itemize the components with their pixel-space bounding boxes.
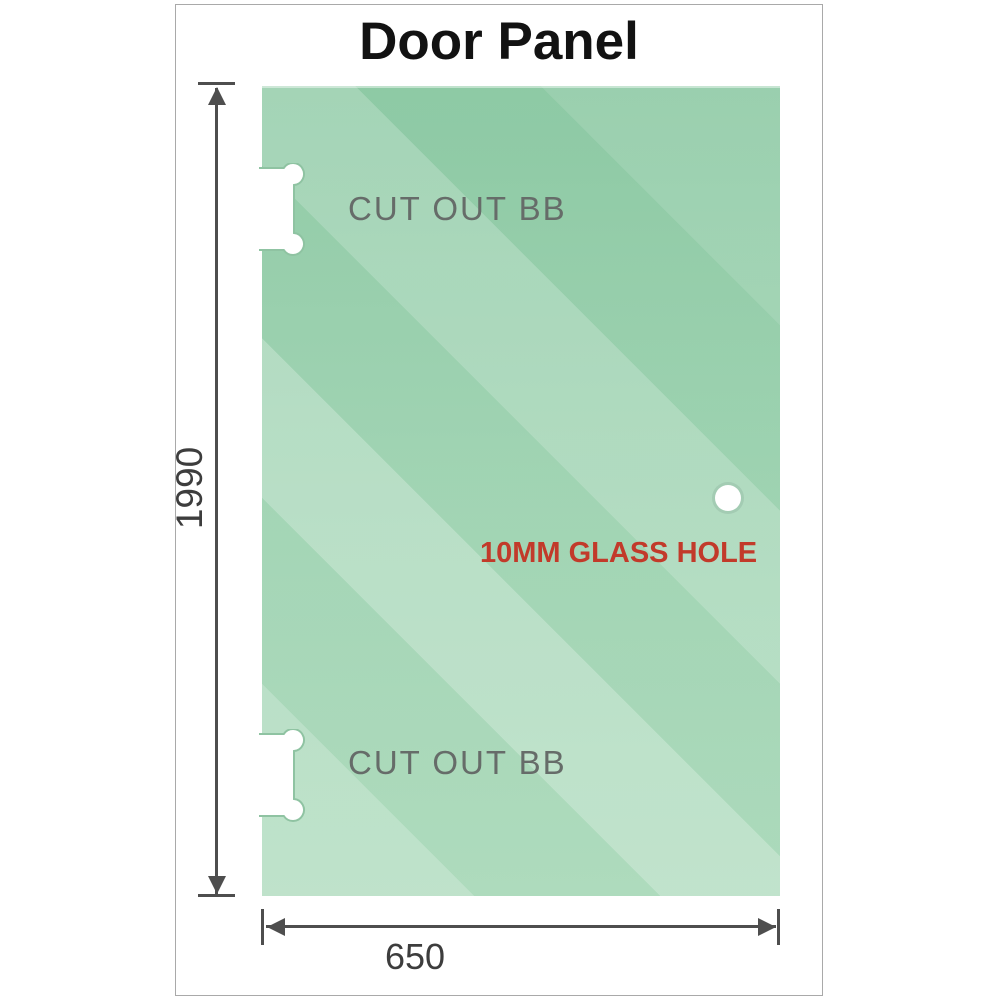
- width-dimension-tick-right: [777, 909, 780, 945]
- arrow-right-icon: [758, 918, 776, 936]
- arrow-down-icon: [208, 876, 226, 894]
- cutout-bottom-label: CUT OUT BB: [348, 743, 608, 783]
- width-dimension-line: [266, 925, 776, 928]
- height-dimension-tick-bottom: [198, 894, 235, 897]
- hinge-cutout-bottom-icon: [259, 729, 309, 823]
- glass-hole-icon: [712, 482, 744, 514]
- cutout-top-label: CUT OUT BB: [348, 189, 608, 229]
- diagram-canvas: Door Panel CUT OUT BB CUT OUT BB 10MM GL…: [0, 0, 1000, 1000]
- width-dimension-tick-left: [261, 909, 264, 945]
- height-dimension-line: [215, 88, 218, 894]
- glass-hole-label: 10MM GLASS HOLE: [480, 536, 750, 570]
- arrow-up-icon: [208, 87, 226, 105]
- arrow-left-icon: [267, 918, 285, 936]
- width-dimension-label: 650: [355, 936, 475, 978]
- height-dimension-label: 1990: [170, 428, 210, 548]
- height-dimension-tick-top: [198, 82, 235, 85]
- hinge-cutout-top-icon: [259, 163, 309, 257]
- page-title: Door Panel: [175, 12, 823, 72]
